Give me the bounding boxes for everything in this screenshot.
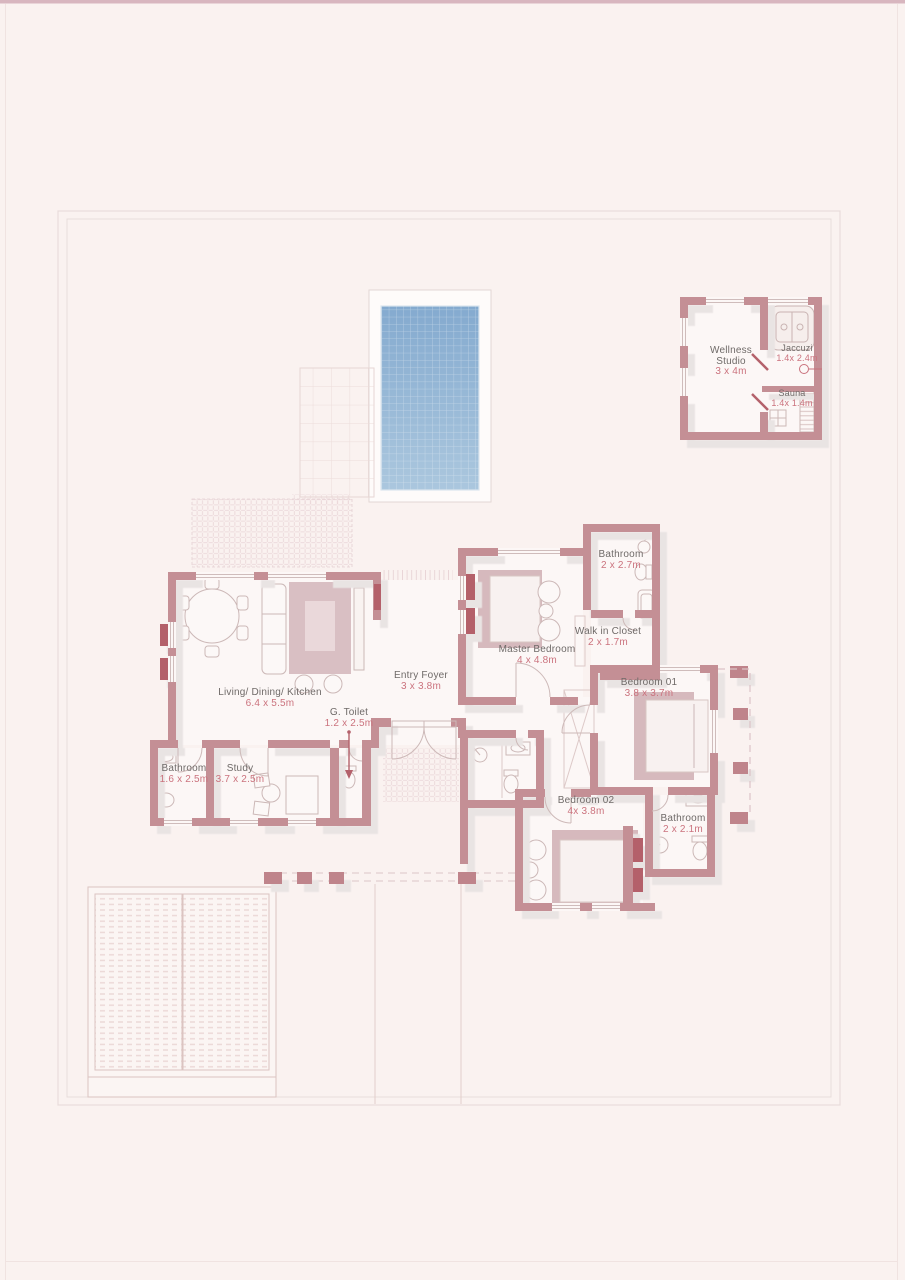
- room-name: Master Bedroom: [499, 645, 576, 656]
- terrace-columns: [730, 666, 748, 824]
- side-table: [522, 862, 538, 878]
- terrace-dashed-boundary: [718, 669, 750, 816]
- chair: [538, 581, 560, 603]
- label-master-bedroom: Master Bedroom 4 x 4.8m: [499, 645, 576, 666]
- label-bedroom-02: Bedroom 02 4x 3.8m: [558, 796, 614, 817]
- room-dims: 1.6 x 2.5m: [160, 775, 209, 786]
- dining-table: [185, 589, 239, 643]
- side-table: [539, 604, 553, 618]
- kitchen-counter: [354, 588, 364, 670]
- room-name: Wellness Studio: [697, 346, 765, 367]
- label-living-dining-kitchen: Living/ Dining/ Kitchen 6.4 x 5.5m: [218, 688, 322, 709]
- room-name: Bathroom: [661, 814, 706, 825]
- pool-deck: [369, 290, 491, 502]
- label-bathroom-02: Bathroom 2 x 2.1m: [661, 814, 706, 835]
- room-dims: 2 x 2.7m: [599, 561, 644, 572]
- label-bathroom-study: Bathroom 1.6 x 2.5m: [160, 764, 209, 785]
- room-dims: 1.2 x 2.5m: [325, 719, 374, 730]
- parking-area: [88, 887, 276, 1097]
- label-g-toilet: G. Toilet 1.2 x 2.5m: [325, 708, 374, 729]
- floor-plan-drawing: [0, 0, 905, 1280]
- chair: [538, 619, 560, 641]
- chair: [526, 880, 546, 900]
- room-dims: 3 x 3.8m: [394, 682, 448, 693]
- room-name: Study: [216, 764, 265, 775]
- room-name: Bedroom 02: [558, 796, 614, 807]
- room-dims: 4 x 4.8m: [499, 656, 576, 667]
- stool: [324, 675, 342, 693]
- label-walk-in-closet: Walk in Closet 2 x 1.7m: [575, 627, 641, 648]
- room-dims: 3.7 x 2.5m: [216, 775, 265, 786]
- label-entry-foyer: Entry Foyer 3 x 3.8m: [394, 671, 448, 692]
- label-master-bathroom: Bathroom 2 x 2.7m: [599, 550, 644, 571]
- room-dims: 6.4 x 5.5m: [218, 699, 322, 710]
- room-name: Bathroom: [160, 764, 209, 775]
- study-desk: [286, 776, 318, 814]
- room-name: Entry Foyer: [394, 671, 448, 682]
- label-sauna: Sauna 1.4x 1.4m: [771, 389, 812, 408]
- room-name: Walk in Closet: [575, 627, 641, 638]
- floor-plan-page: Wellness Studio 3 x 4m Jaccuzi 1.4x 2.4m…: [0, 0, 905, 1280]
- chair: [526, 840, 546, 860]
- driveway-path: [375, 884, 461, 1104]
- label-wellness-studio: Wellness Studio 3 x 4m: [697, 346, 765, 378]
- room-name: Living/ Dining/ Kitchen: [218, 688, 322, 699]
- room-dims: 2 x 1.7m: [575, 638, 641, 649]
- room-name: G. Toilet: [325, 708, 374, 719]
- entry-porch-hatch: [383, 748, 459, 802]
- label-bedroom-01: Bedroom 01 3.8 x 3.7m: [621, 678, 677, 699]
- room-dims: 1.4x 2.4m: [776, 354, 817, 364]
- room-dims: 2 x 2.1m: [661, 825, 706, 836]
- room-dims: 3.8 x 3.7m: [621, 689, 677, 700]
- pergola-grid: [300, 368, 374, 497]
- room-dims: 4x 3.8m: [558, 807, 614, 818]
- room-dims: 1.4x 1.4m: [771, 399, 812, 409]
- terrace-hatch-north: [192, 499, 352, 567]
- label-jaccuzi: Jaccuzi 1.4x 2.4m: [776, 344, 817, 363]
- room-name: Bathroom: [599, 550, 644, 561]
- room-dims: 3 x 4m: [697, 367, 765, 378]
- canopy-columns: [264, 872, 476, 884]
- label-study: Study 3.7 x 2.5m: [216, 764, 265, 785]
- room-name: Bedroom 01: [621, 678, 677, 689]
- sofa: [262, 584, 286, 674]
